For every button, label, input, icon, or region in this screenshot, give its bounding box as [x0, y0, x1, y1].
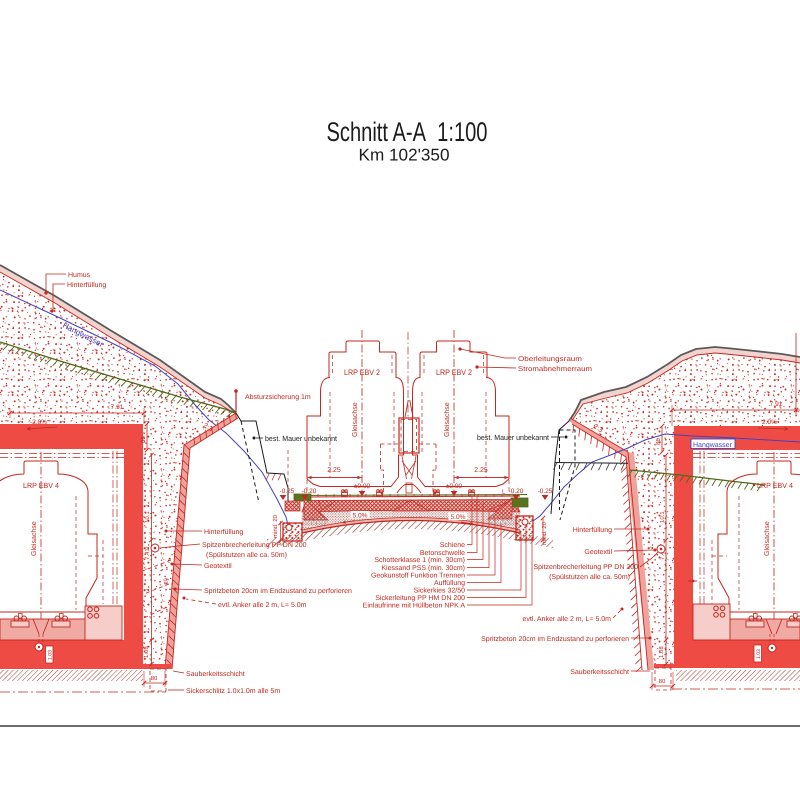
svg-text:5.0%: 5.0%	[450, 514, 465, 521]
svg-text:Sauberkeitsschicht: Sauberkeitsschicht	[570, 668, 629, 676]
svg-text:mind. 20: mind. 20	[272, 514, 279, 538]
svg-text:±0.00: ±0.00	[446, 483, 463, 490]
svg-text:Schotterklasse 1 (min. 30cm): Schotterklasse 1 (min. 30cm)	[374, 556, 465, 564]
svg-text:Hinterfüllung: Hinterfüllung	[204, 528, 243, 536]
svg-text:5.0%: 5.0%	[352, 513, 367, 520]
svg-text:20: 20	[163, 578, 170, 585]
svg-text:Gleisachse: Gleisachse	[30, 521, 38, 556]
svg-text:best. Mauer unbekannt: best. Mauer unbekannt	[265, 434, 338, 443]
svg-text:Spitzenbrecherleitung PP DN 20: Spitzenbrecherleitung PP DN 200	[533, 563, 638, 571]
svg-text:Gleisachse: Gleisachse	[763, 521, 771, 556]
svg-text:Hinterfüllung: Hinterfüllung	[573, 526, 612, 534]
svg-text:evtl. Anker alle 2 m, L= 5.0m: evtl. Anker alle 2 m, L= 5.0m	[522, 615, 611, 623]
svg-text:-0.20: -0.20	[509, 488, 524, 495]
svg-text:Hangwasser: Hangwasser	[693, 442, 733, 449]
svg-text:Humus: Humus	[68, 272, 91, 279]
svg-text:Hinterfüllung: Hinterfüllung	[67, 281, 106, 289]
svg-text:Sickerkies 32/50: Sickerkies 32/50	[414, 587, 465, 595]
svg-text:2.0%: 2.0%	[762, 419, 777, 426]
svg-text:-0.20: -0.20	[302, 488, 317, 495]
svg-text:Spritzbeton 20cm im Endzustand: Spritzbeton 20cm im Endzustand zu perfor…	[481, 635, 629, 643]
svg-text:Gleisachse: Gleisachse	[351, 402, 359, 437]
svg-text:2.25: 2.25	[327, 467, 341, 474]
svg-text:1.03: 1.03	[48, 650, 54, 660]
svg-text:86: 86	[655, 438, 662, 445]
svg-text:Stromabnehmerraum: Stromabnehmerraum	[518, 365, 592, 373]
svg-text:LRP EBV 4: LRP EBV 4	[23, 481, 59, 490]
svg-text:Betonschwelle: Betonschwelle	[420, 549, 465, 557]
svg-text:Auffüllung: Auffüllung	[434, 579, 465, 587]
svg-text:7.91: 7.91	[770, 401, 783, 408]
svg-text:Gleisachse: Gleisachse	[443, 402, 451, 437]
svg-text:10.1: 10.1	[659, 511, 666, 523]
svg-text:1.03: 1.03	[756, 649, 762, 659]
svg-text:Schnitt A-A 1:100: Schnitt A-A 1:100	[327, 117, 488, 147]
svg-text:L: L	[502, 489, 506, 496]
svg-text:86: 86	[140, 436, 147, 443]
svg-text:Geotextil: Geotextil	[204, 562, 232, 570]
svg-text:2.25: 2.25	[474, 467, 488, 474]
svg-text:Schiene: Schiene	[440, 541, 465, 549]
svg-text:Sauberkeitsschicht: Sauberkeitsschicht	[186, 670, 245, 678]
svg-text:7.41: 7.41	[144, 548, 151, 560]
svg-text:(Spülstutzen alle ca. 50m): (Spülstutzen alle ca. 50m)	[206, 551, 287, 559]
svg-text:80: 80	[659, 678, 666, 685]
svg-text:Einlaufrinne mit Hüllbeton NPK: Einlaufrinne mit Hüllbeton NPK A	[363, 602, 466, 610]
svg-text:-2.0%: -2.0%	[30, 419, 47, 426]
svg-text:10.1: 10.1	[144, 511, 151, 523]
svg-text:evtl. Anker alle 2 m, L= 5.0m: evtl. Anker alle 2 m, L= 5.0m	[218, 601, 307, 609]
svg-text:Spritzbeton 20cm im Endzustand: Spritzbeton 20cm im Endzustand zu perfor…	[204, 587, 352, 595]
svg-text:Sickerschlitz 1.0x1.0m alle 5m: Sickerschlitz 1.0x1.0m alle 5m	[186, 687, 280, 695]
svg-text:Geokunstoff Funktion Trennen: Geokunstoff Funktion Trennen	[371, 572, 465, 580]
svg-text:Absturzsicherung 1m: Absturzsicherung 1m	[245, 393, 311, 401]
svg-text:-0.25: -0.25	[538, 488, 553, 495]
svg-text:(Spülstutzen alle ca. 50m): (Spülstutzen alle ca. 50m)	[549, 573, 630, 581]
svg-text:1.08: 1.08	[658, 646, 665, 658]
svg-text:Kiessand PSS (min. 30cm): Kiessand PSS (min. 30cm)	[381, 564, 465, 572]
svg-text:Oberleitungsraum: Oberleitungsraum	[518, 355, 582, 363]
svg-text:Sickerleitung PP HM DN 200: Sickerleitung PP HM DN 200	[375, 594, 465, 602]
svg-text:7.91: 7.91	[111, 404, 124, 411]
svg-text:-0.25: -0.25	[280, 488, 295, 495]
svg-text:±0.00: ±0.00	[354, 483, 371, 490]
svg-text:Km 102'350: Km 102'350	[359, 146, 450, 165]
svg-text:LRP EBV 4: LRP EBV 4	[757, 481, 793, 490]
svg-text:best. Mauer unbekannt: best. Mauer unbekannt	[477, 433, 550, 442]
svg-text:1.08: 1.08	[143, 646, 150, 658]
svg-text:Geotextil: Geotextil	[584, 548, 612, 556]
svg-text:80: 80	[151, 675, 158, 682]
